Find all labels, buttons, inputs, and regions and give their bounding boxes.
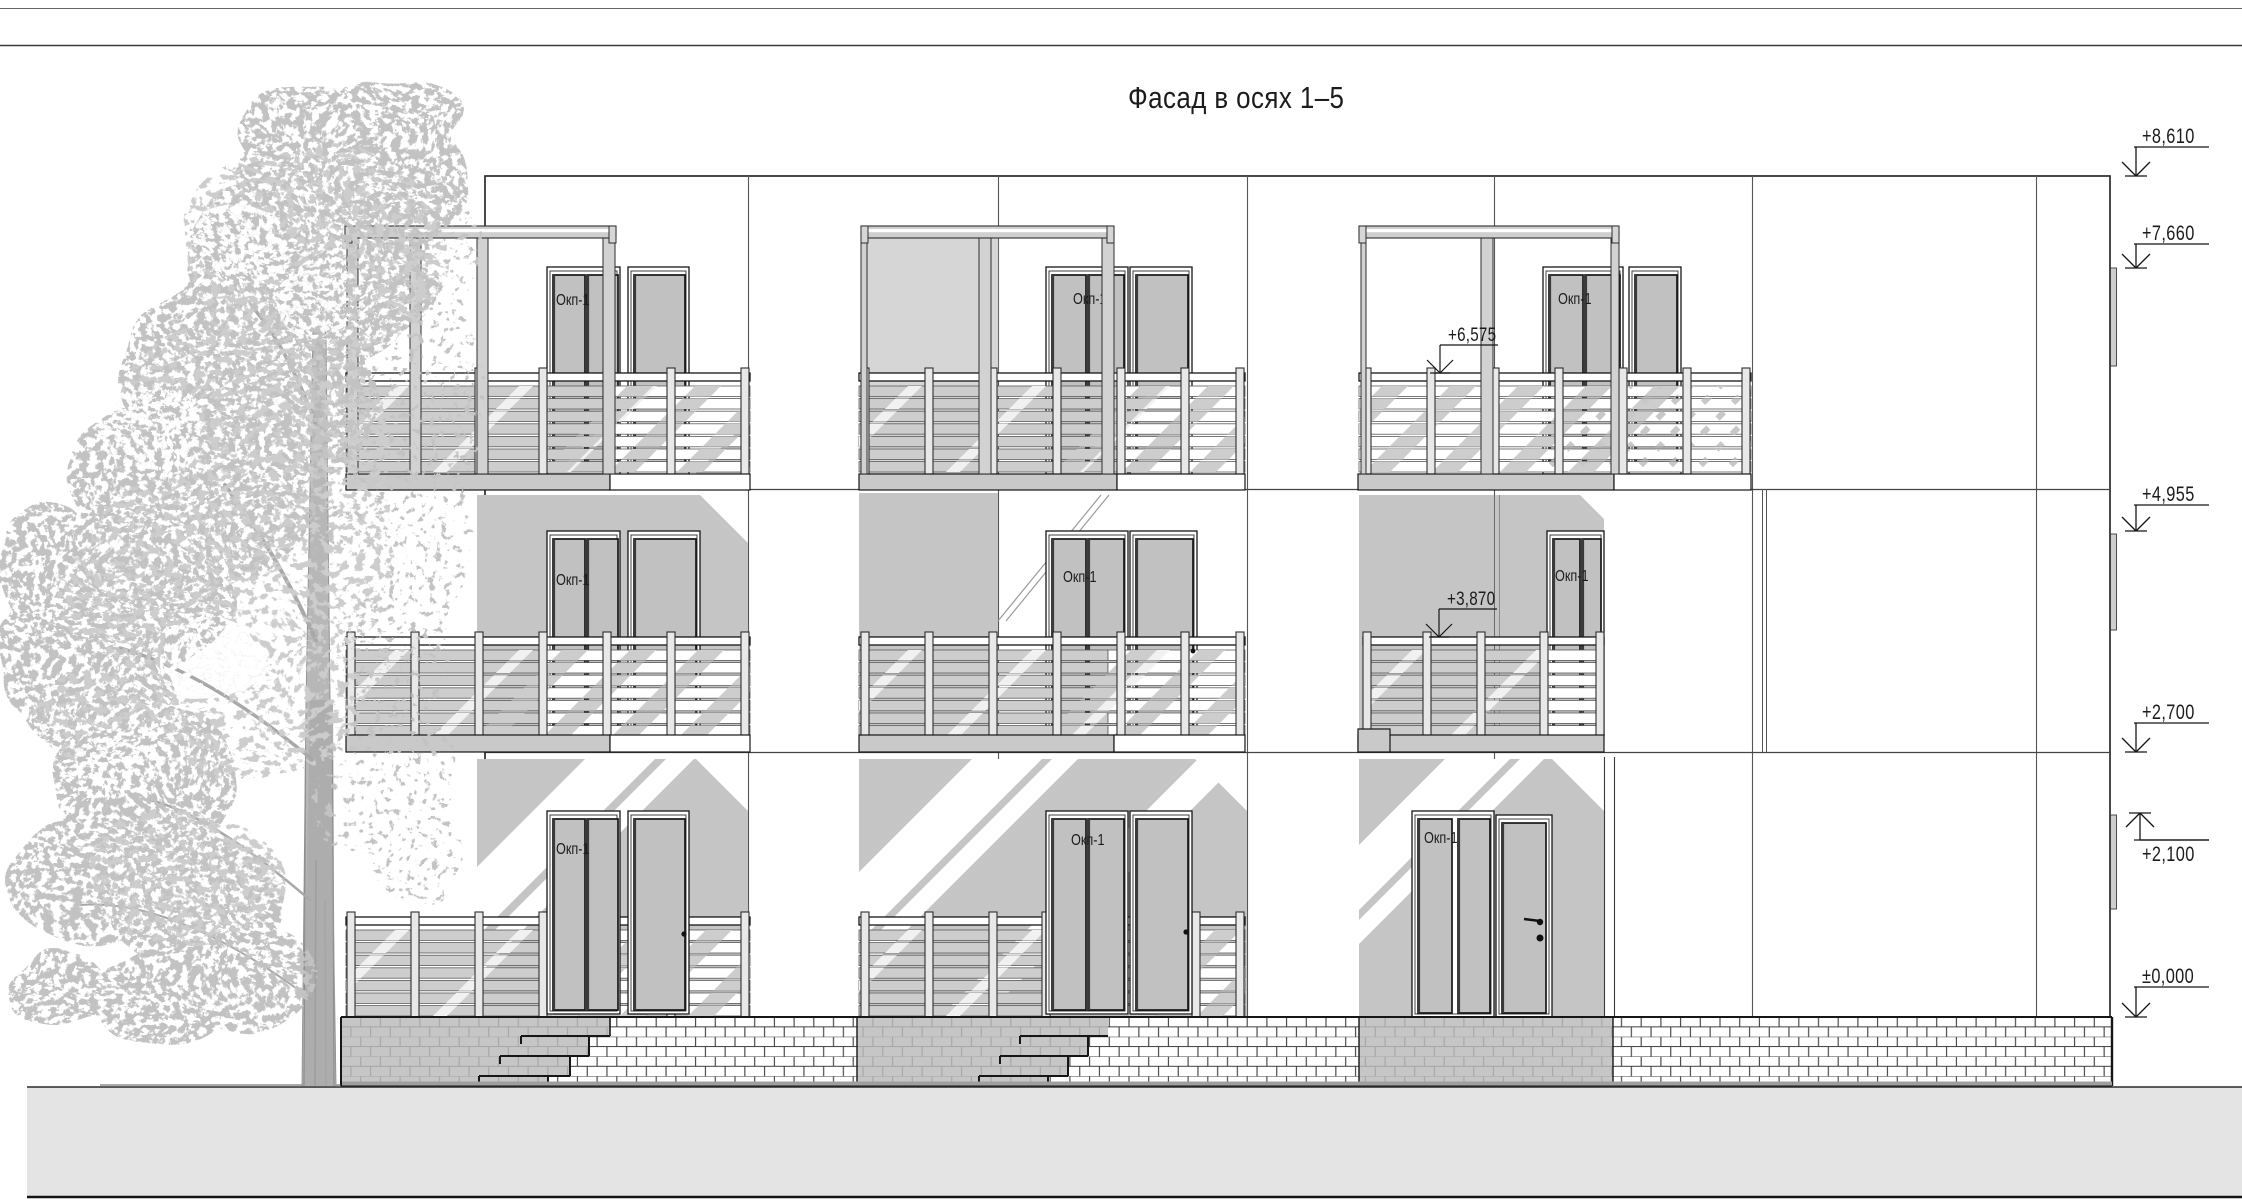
svg-text:+7,660: +7,660 <box>2142 222 2195 246</box>
svg-text:±0,000: ±0,000 <box>2142 965 2194 989</box>
svg-text:Окп-1: Окп-1 <box>556 841 590 858</box>
svg-text:Окп-1: Окп-1 <box>556 292 590 309</box>
svg-text:+4,955: +4,955 <box>2142 483 2195 507</box>
svg-text:Окп-1: Окп-1 <box>1558 291 1592 308</box>
svg-text:+8,610: +8,610 <box>2142 125 2195 149</box>
svg-text:Фасад в осях 1–5: Фасад в осях 1–5 <box>1128 80 1344 114</box>
svg-text:Окп-1: Окп-1 <box>1424 830 1458 847</box>
svg-text:+3,870: +3,870 <box>1447 587 1495 609</box>
svg-text:Окп-1: Окп-1 <box>1063 569 1097 586</box>
svg-text:+2,700: +2,700 <box>2142 701 2195 725</box>
svg-text:Окп-1: Окп-1 <box>556 572 590 589</box>
svg-text:+2,100: +2,100 <box>2142 843 2195 867</box>
svg-text:Окп-1: Окп-1 <box>1555 568 1589 585</box>
svg-text:+6,575: +6,575 <box>1448 323 1496 345</box>
svg-text:Окп-1: Окп-1 <box>1071 832 1105 849</box>
